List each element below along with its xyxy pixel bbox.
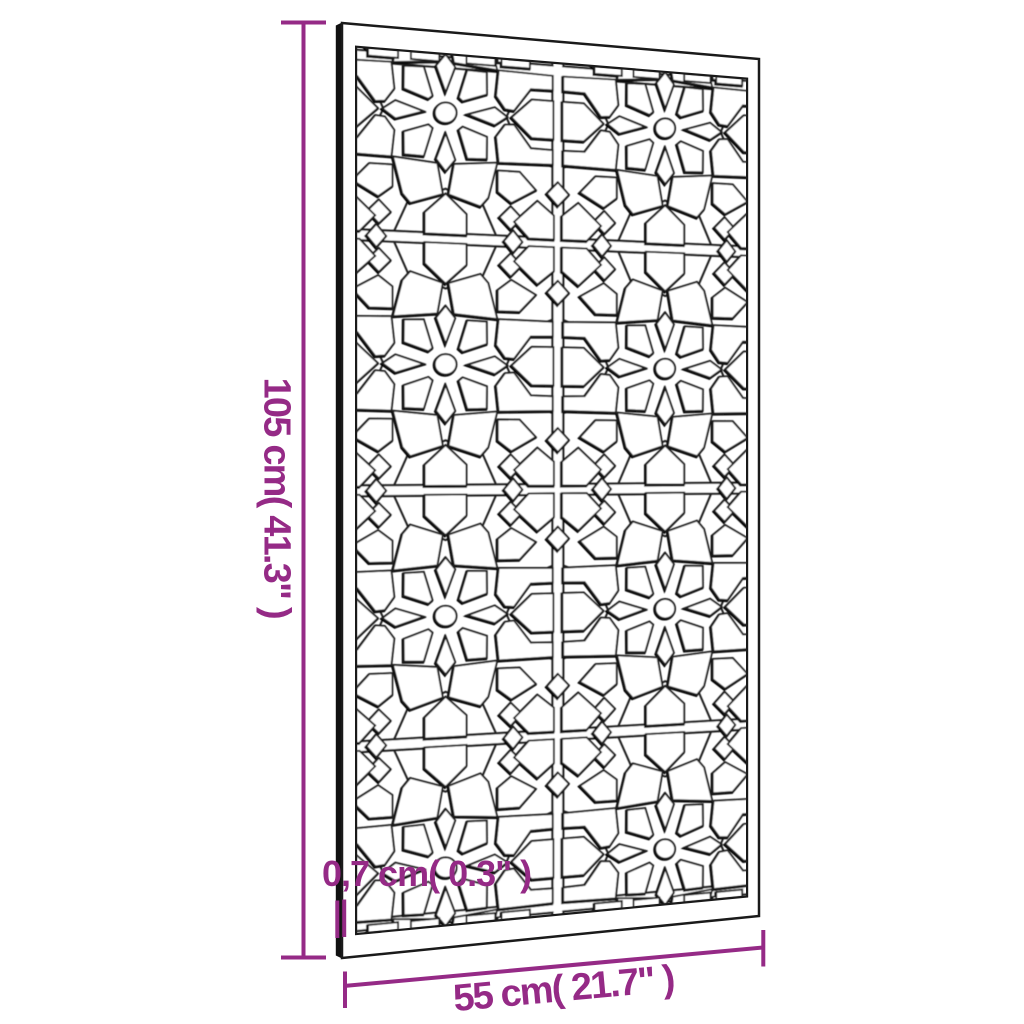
svg-text:105 cm( 41.3" ): 105 cm( 41.3" )	[256, 378, 298, 618]
svg-text:0,7 cm( 0.3" ): 0,7 cm( 0.3" )	[322, 853, 531, 894]
